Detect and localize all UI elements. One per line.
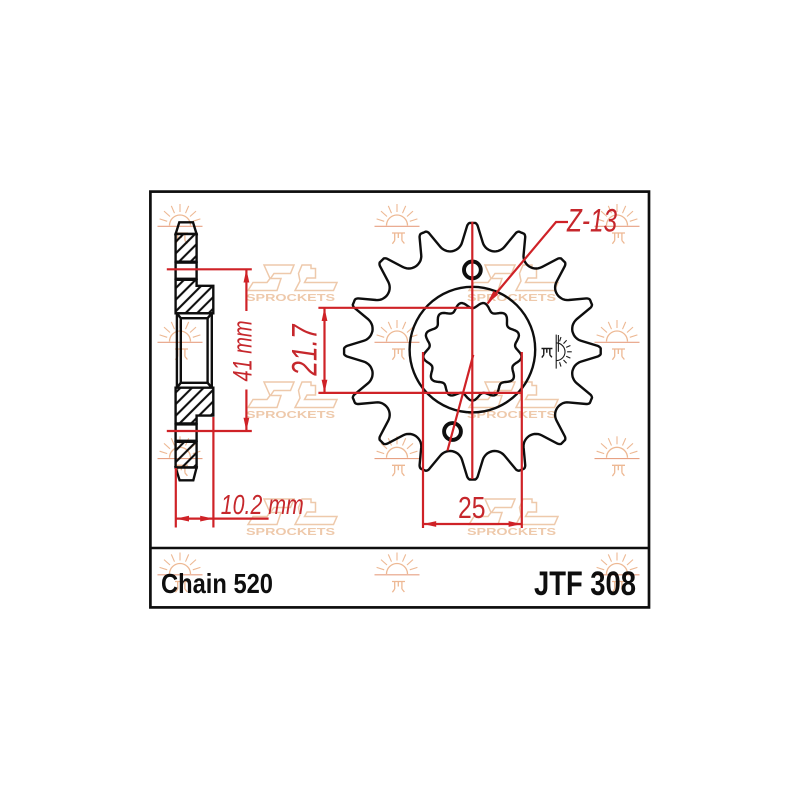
- svg-text:SPROCKETS: SPROCKETS: [467, 293, 556, 304]
- svg-text:25: 25: [458, 490, 486, 525]
- svg-text:21.7: 21.7: [286, 323, 325, 376]
- svg-text:SPROCKETS: SPROCKETS: [246, 293, 335, 304]
- svg-text:41 mm: 41 mm: [228, 321, 258, 382]
- svg-text:10.2 mm: 10.2 mm: [221, 489, 304, 520]
- svg-text:Z-13: Z-13: [566, 203, 617, 239]
- svg-text:SPROCKETS: SPROCKETS: [467, 410, 556, 421]
- svg-text:SPROCKETS: SPROCKETS: [467, 527, 556, 538]
- svg-text:SPROCKETS: SPROCKETS: [246, 527, 335, 538]
- svg-text:SPROCKETS: SPROCKETS: [246, 410, 335, 421]
- svg-text:JTF 308: JTF 308: [534, 565, 636, 603]
